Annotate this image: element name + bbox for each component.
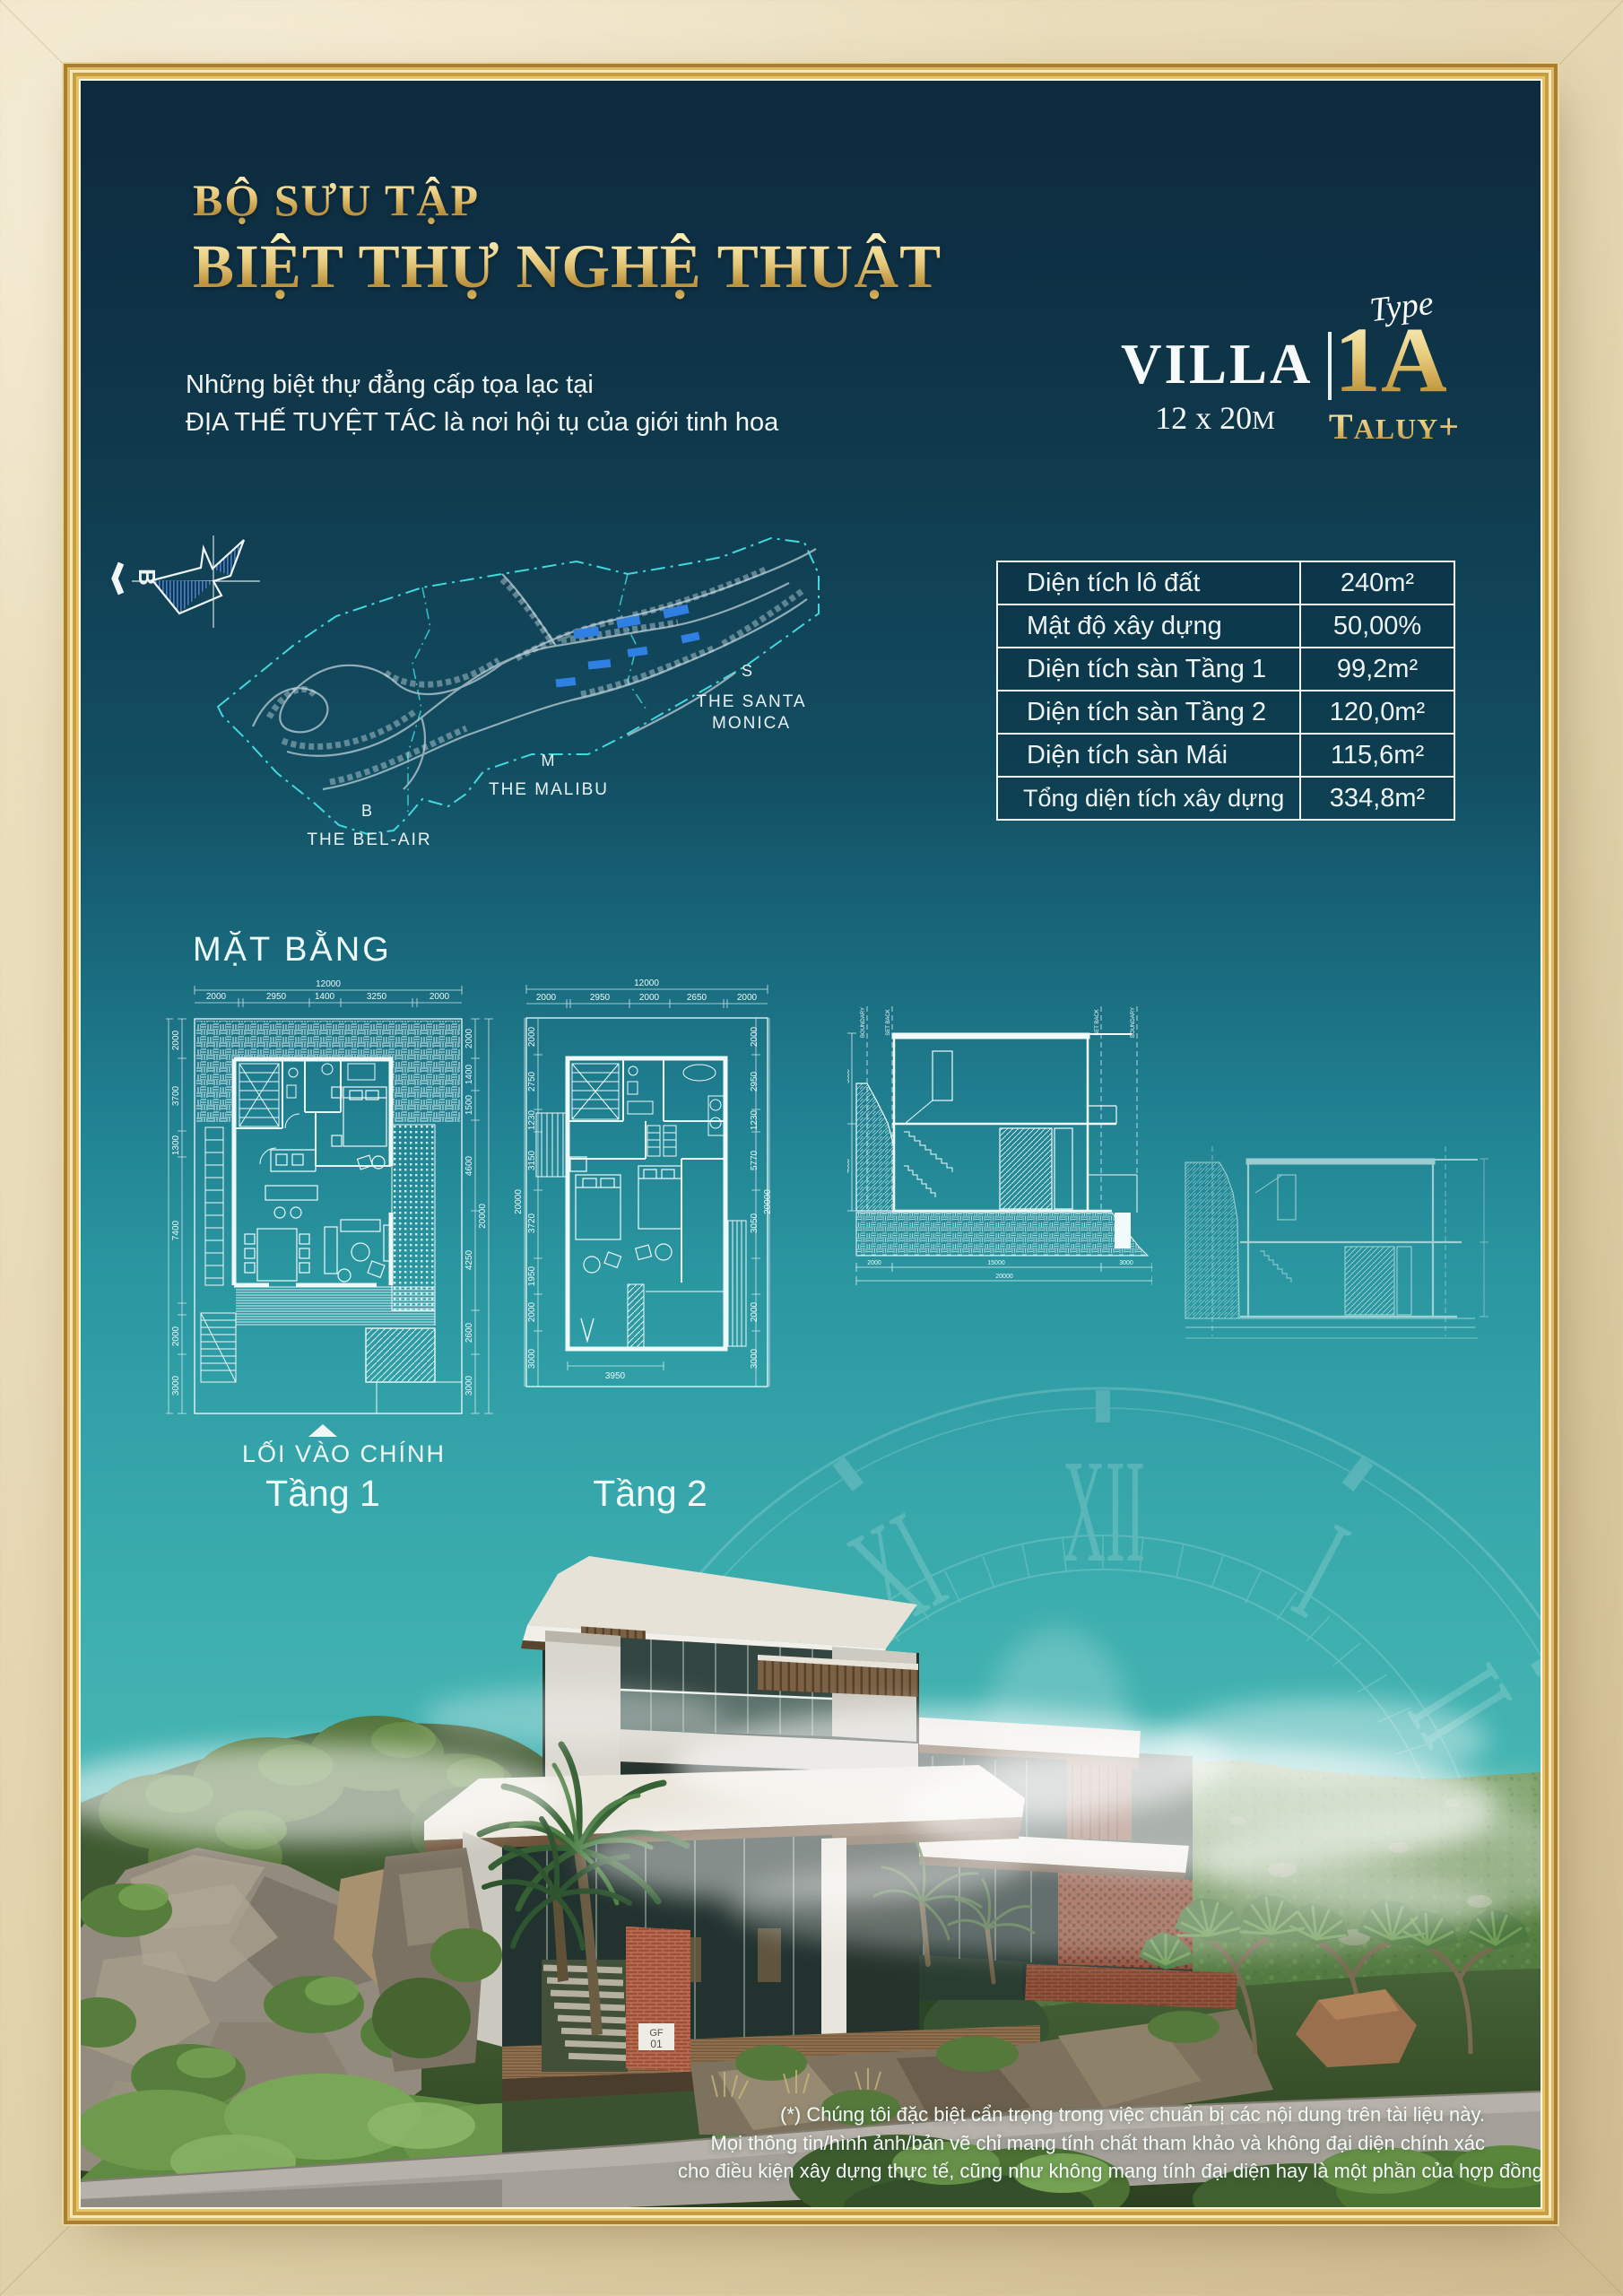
- svg-text:20000: 20000: [995, 1274, 1013, 1280]
- svg-text:S: S: [742, 662, 754, 680]
- svg-text:20000: 20000: [763, 1189, 773, 1214]
- svg-text:THE MALIBU: THE MALIBU: [489, 780, 609, 799]
- svg-text:M: M: [542, 752, 557, 770]
- svg-text:2950: 2950: [750, 1071, 759, 1091]
- svg-text:1300: 1300: [171, 1135, 181, 1155]
- svg-text:2950: 2950: [266, 992, 287, 1002]
- svg-text:2000: 2000: [464, 1028, 474, 1048]
- svg-text:3700: 3700: [171, 1085, 181, 1106]
- svg-text:20000: 20000: [478, 1204, 488, 1229]
- svg-text:2000: 2000: [639, 993, 660, 1003]
- svg-text:3150: 3150: [527, 1150, 537, 1170]
- svg-text:3250: 3250: [367, 992, 387, 1002]
- svg-text:3000: 3000: [1119, 1260, 1133, 1266]
- svg-text:3720: 3720: [527, 1213, 537, 1233]
- svg-text:20000: 20000: [514, 1189, 524, 1214]
- svg-text:12000: 12000: [316, 979, 341, 989]
- svg-text:SET BACK: SET BACK: [1095, 1009, 1100, 1036]
- svg-text:5770: 5770: [750, 1150, 759, 1170]
- svg-text:1400: 1400: [315, 992, 335, 1002]
- svg-text:1950: 1950: [527, 1265, 537, 1286]
- svg-text:2950: 2950: [590, 993, 611, 1003]
- svg-text:7400: 7400: [171, 1220, 181, 1240]
- svg-text:B: B: [361, 802, 374, 820]
- svg-text:1400: 1400: [464, 1064, 474, 1084]
- svg-text:2000: 2000: [527, 1026, 537, 1047]
- svg-text:XII: XII: [1063, 1429, 1145, 1593]
- svg-text:4250: 4250: [464, 1249, 474, 1270]
- svg-text:THE BEL-AIR: THE BEL-AIR: [307, 831, 431, 849]
- svg-text:2000: 2000: [171, 1030, 181, 1050]
- svg-text:3600: 3600: [847, 1069, 851, 1083]
- svg-text:2750: 2750: [527, 1071, 537, 1091]
- svg-text:2000: 2000: [737, 993, 758, 1003]
- svg-text:MONICA: MONICA: [712, 714, 791, 733]
- svg-text:15000: 15000: [987, 1260, 1005, 1266]
- svg-text:1500: 1500: [464, 1094, 474, 1115]
- svg-text:B: B: [134, 569, 161, 586]
- svg-text:2000: 2000: [867, 1260, 881, 1266]
- svg-text:1230: 1230: [527, 1109, 537, 1130]
- svg-text:2000: 2000: [536, 993, 557, 1003]
- svg-text:4000: 4000: [847, 1159, 851, 1173]
- svg-text:3050: 3050: [750, 1213, 759, 1233]
- svg-text:SET BACK: SET BACK: [886, 1009, 891, 1036]
- svg-text:BOUNDARY: BOUNDARY: [861, 1007, 866, 1038]
- svg-text:12000: 12000: [634, 978, 659, 988]
- svg-text:THE SANTA: THE SANTA: [696, 692, 806, 711]
- svg-text:2000: 2000: [430, 992, 450, 1002]
- svg-text:01: 01: [650, 2038, 663, 2050]
- svg-text:2000: 2000: [206, 992, 227, 1002]
- svg-text:2650: 2650: [687, 993, 707, 1003]
- svg-text:BOUNDARY: BOUNDARY: [1131, 1007, 1136, 1038]
- svg-text:4600: 4600: [464, 1155, 474, 1176]
- svg-text:1230: 1230: [750, 1109, 759, 1130]
- svg-text:20000: 20000: [166, 1204, 168, 1229]
- svg-text:2000: 2000: [750, 1026, 759, 1047]
